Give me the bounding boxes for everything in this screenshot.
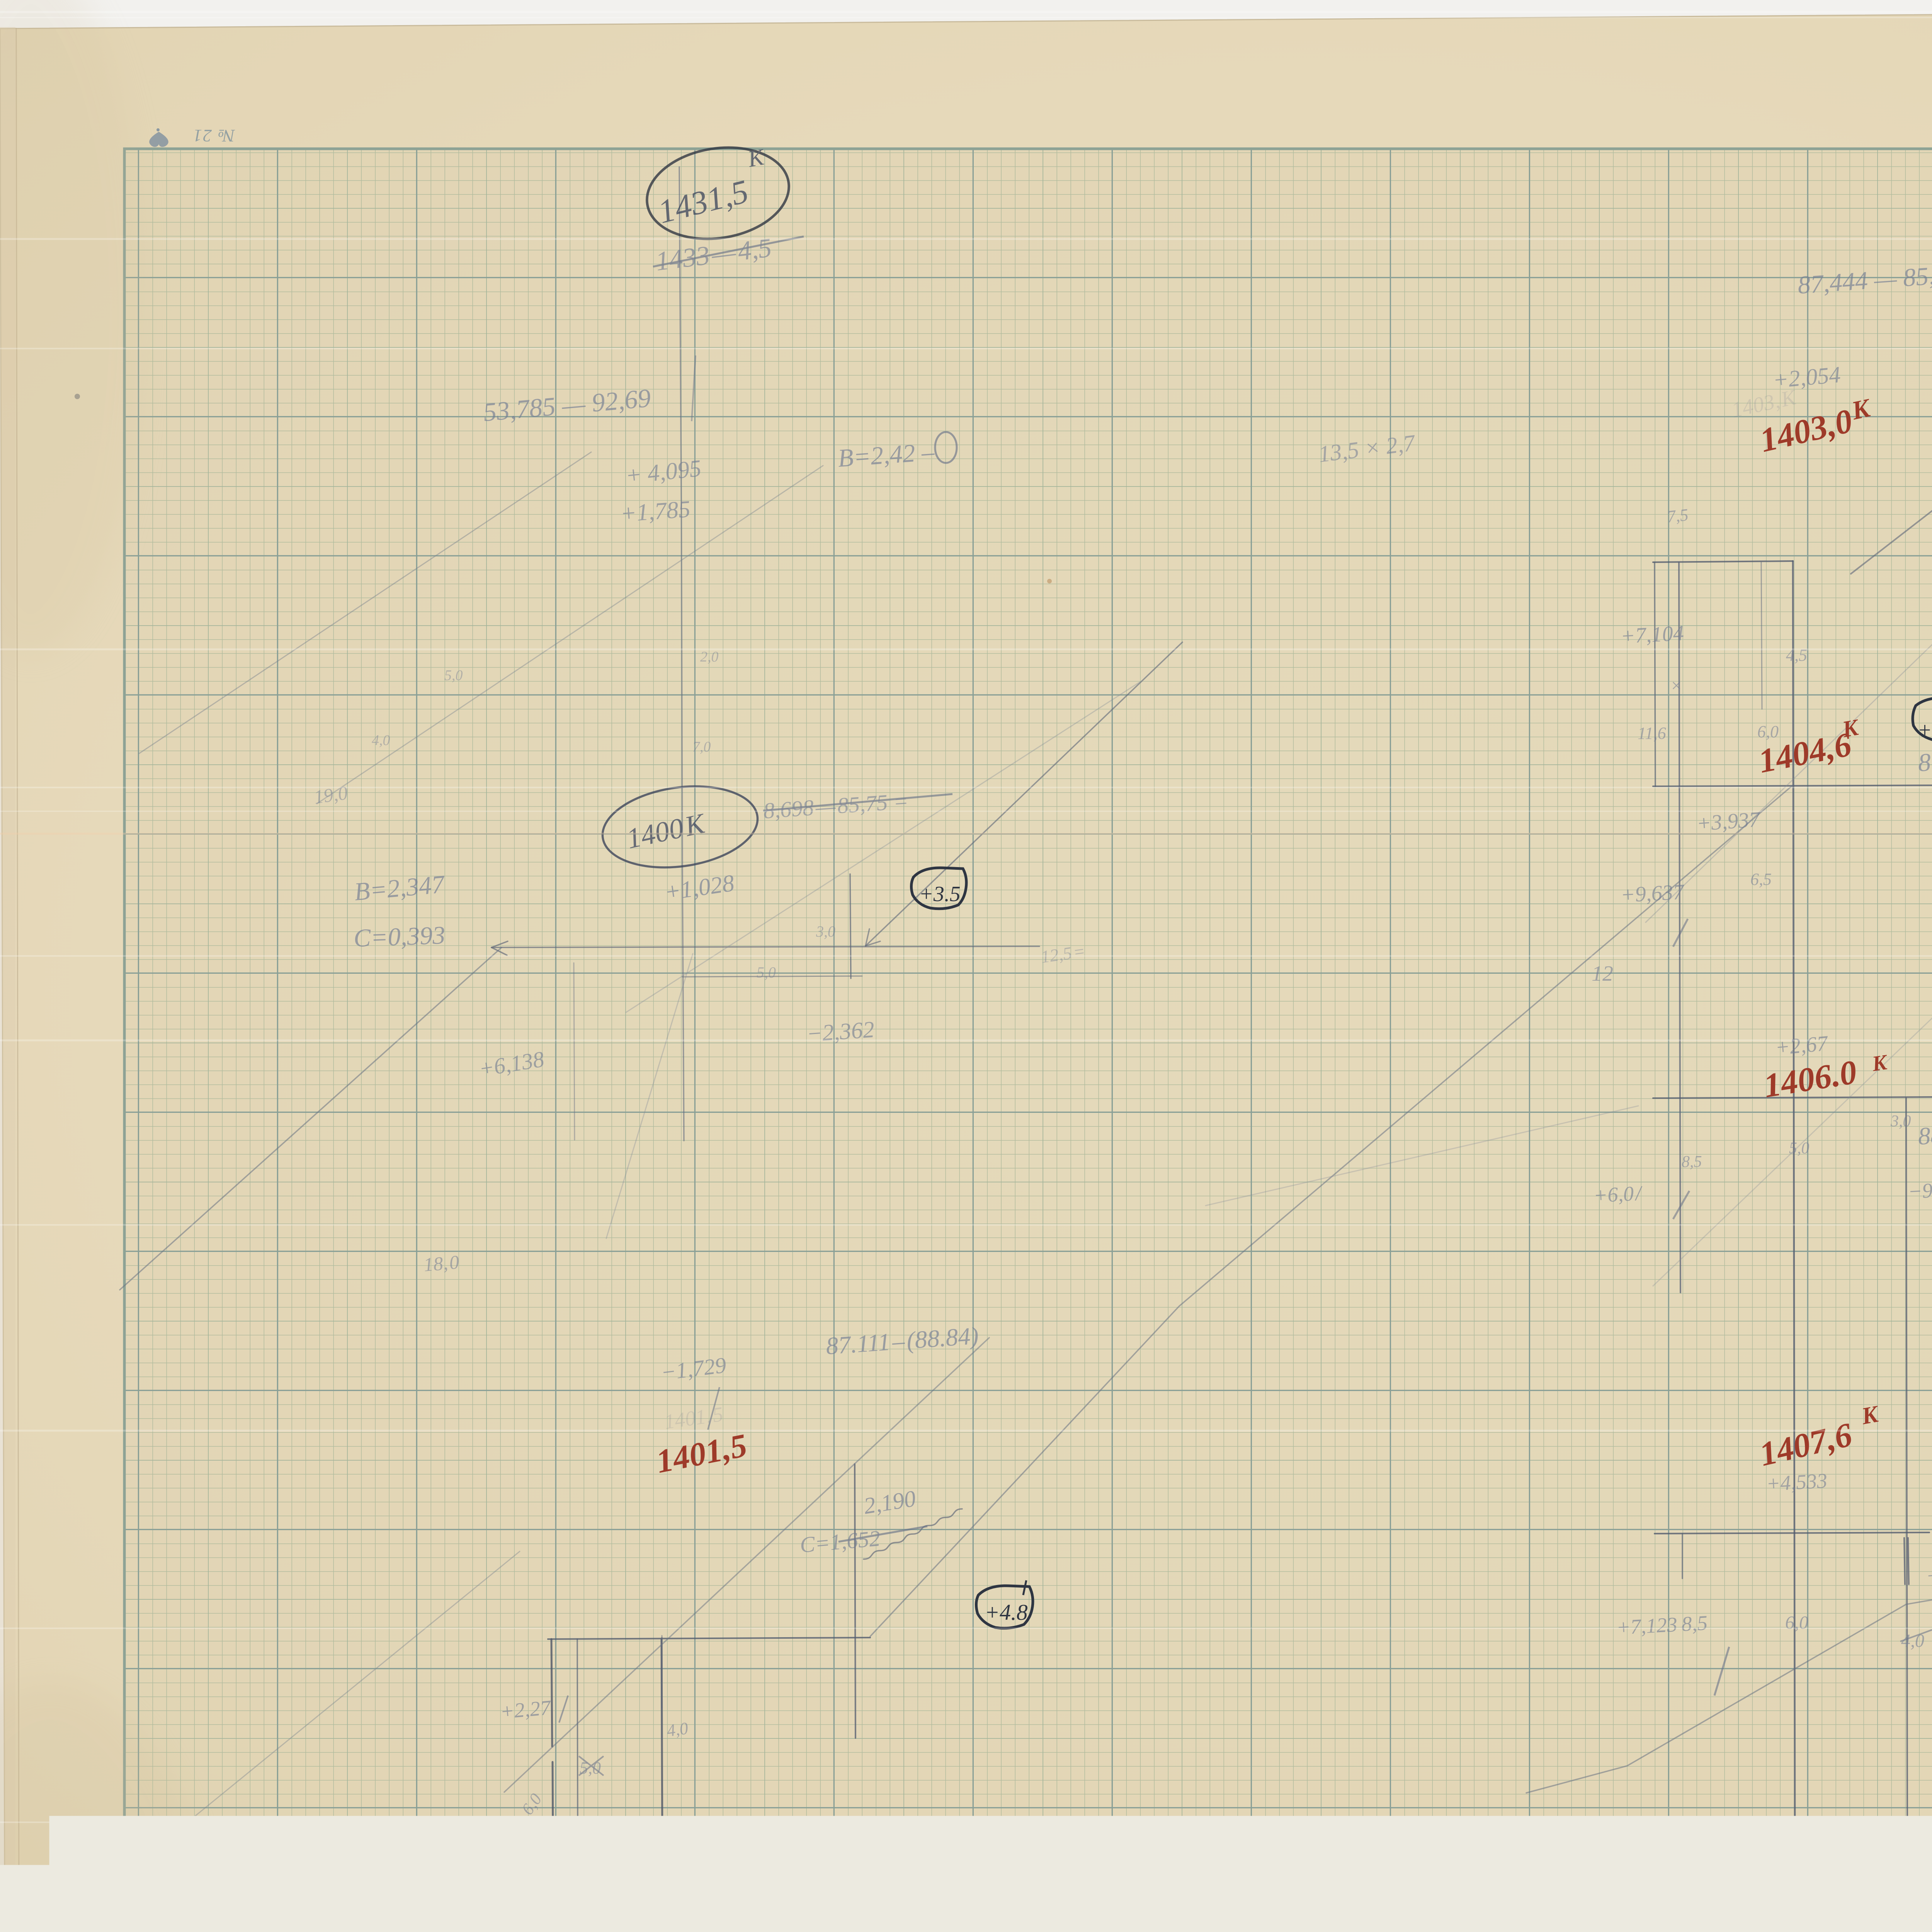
svg-text:+4.8: +4.8 <box>985 1600 1028 1625</box>
svg-text:+1,785: +1,785 <box>619 496 691 527</box>
svg-text:−9,13: −9,13 <box>1907 1177 1932 1203</box>
svg-text:8,5: 8,5 <box>1682 1153 1702 1171</box>
svg-text:−2,362: −2,362 <box>806 1017 875 1047</box>
svg-text:№ 21: № 21 <box>192 126 235 146</box>
svg-text:6,0: 6,0 <box>1785 1612 1808 1633</box>
svg-text:×: × <box>1670 675 1682 696</box>
svg-text:4,0: 4,0 <box>372 732 390 748</box>
svg-text:5,0: 5,0 <box>757 964 776 981</box>
svg-text:+3.5: +3.5 <box>919 882 961 906</box>
svg-text:3,0: 3,0 <box>1890 1112 1911 1130</box>
svg-text:+2,67: +2,67 <box>1774 1031 1830 1060</box>
svg-text:7,0: 7,0 <box>692 739 711 755</box>
svg-text:6,0: 6,0 <box>1757 722 1779 741</box>
svg-text:+7,104: +7,104 <box>1620 621 1684 648</box>
svg-text:+2,27: +2,27 <box>499 1696 553 1723</box>
svg-text:+9,637: +9,637 <box>1620 880 1685 907</box>
svg-text:11,6: 11,6 <box>1638 724 1666 743</box>
svg-text:6,5: 6,5 <box>1750 870 1772 889</box>
svg-text:18, 0: 18, 0 <box>423 1251 460 1276</box>
svg-text:+4,533: +4,533 <box>1765 1469 1828 1495</box>
svg-text:+10.2: +10.2 <box>1917 718 1932 742</box>
svg-text:12: 12 <box>1592 962 1613 986</box>
svg-text:5,0: 5,0 <box>1789 1139 1810 1157</box>
svg-text:+2,403: +2,403 <box>1925 1561 1932 1587</box>
svg-text:+6,0 /: +6,0 / <box>1593 1181 1643 1207</box>
svg-text:7,5: 7,5 <box>1666 505 1689 526</box>
svg-text:2,0: 2,0 <box>700 649 719 665</box>
svg-text:C=0,393: C=0,393 <box>353 921 446 952</box>
svg-text:5,0: 5,0 <box>444 667 463 684</box>
svg-text:3,0: 3,0 <box>816 923 835 940</box>
svg-text:4,0: 4,0 <box>666 1719 689 1740</box>
svg-text:+7,123 8,5: +7,123 8,5 <box>1616 1611 1708 1639</box>
